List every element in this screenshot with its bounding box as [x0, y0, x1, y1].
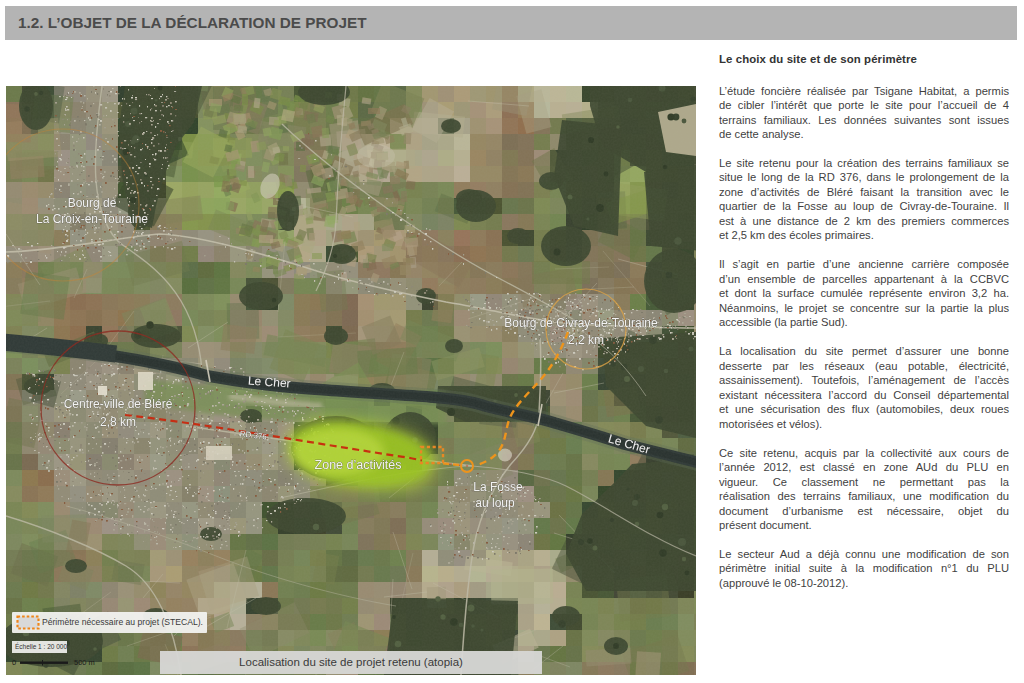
svg-text:0: 0 — [12, 658, 16, 667]
svg-text:500 m: 500 m — [74, 658, 95, 667]
